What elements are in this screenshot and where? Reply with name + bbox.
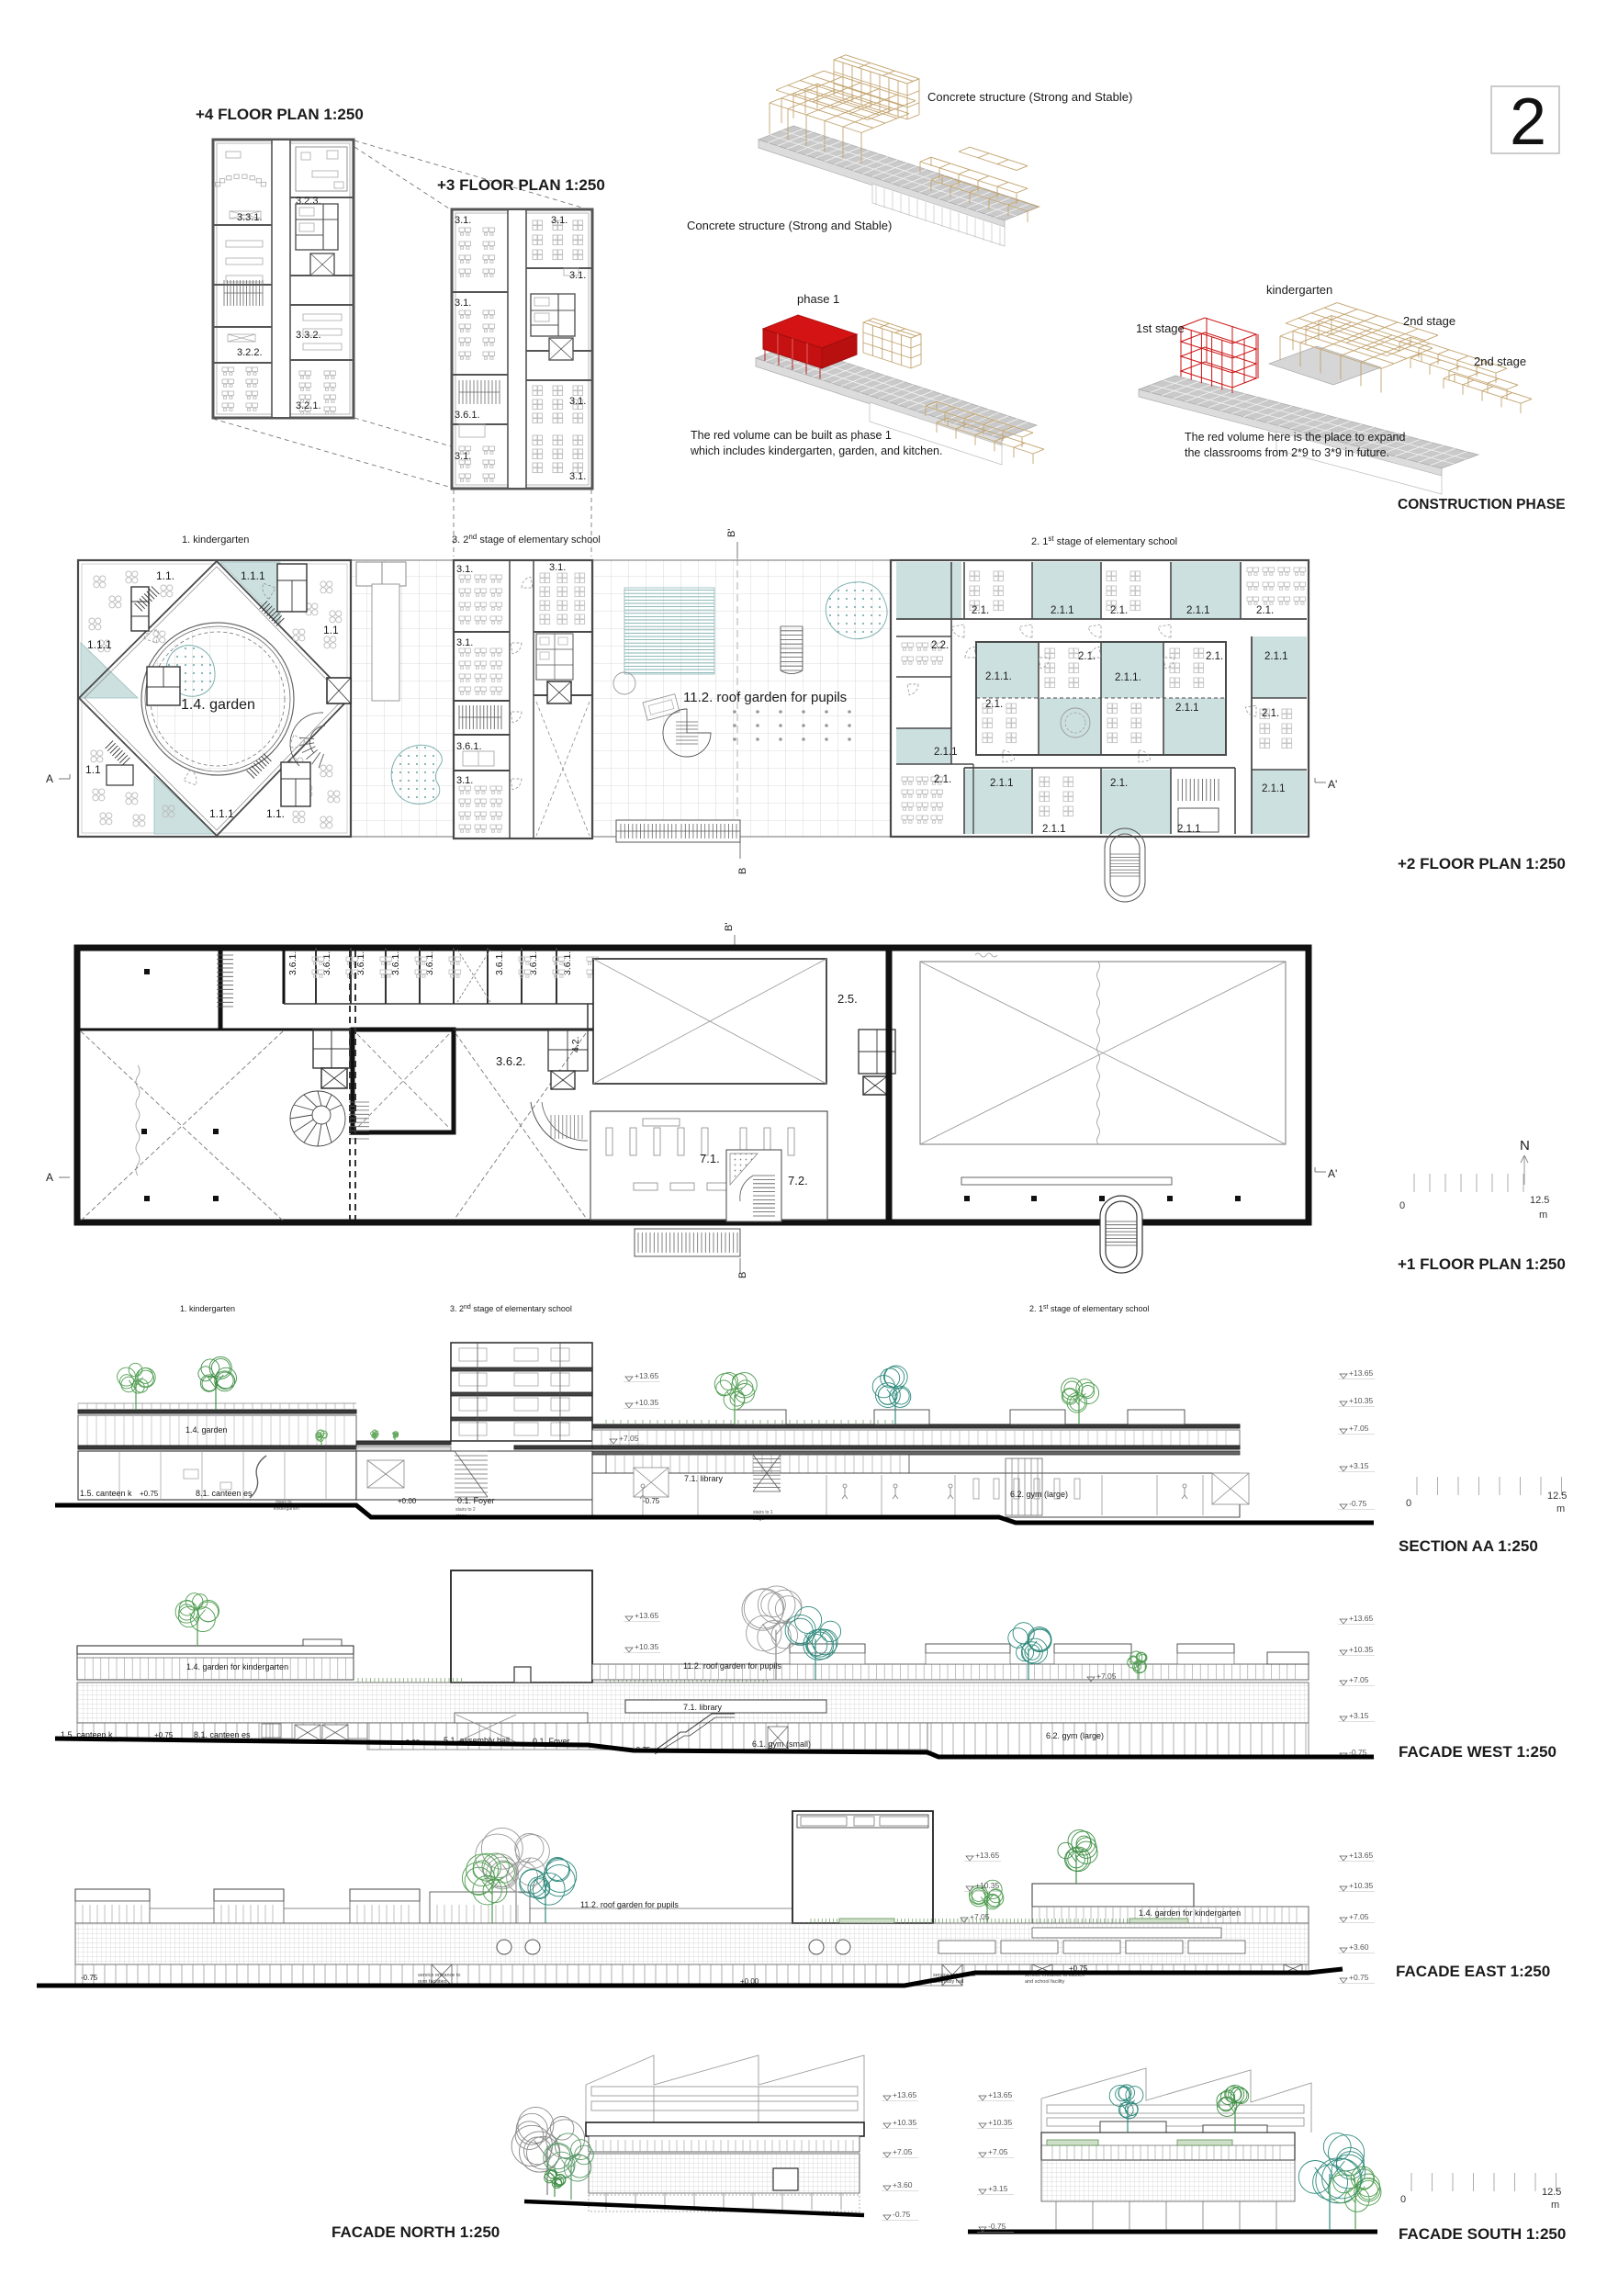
svg-text:3.1.: 3.1. [456, 564, 473, 575]
svg-text:0: 0 [1400, 2194, 1406, 2205]
svg-text:-0.75: -0.75 [988, 2222, 1006, 2231]
svg-text:Concrete structure (Strong and: Concrete structure (Strong and Stable) [927, 90, 1132, 104]
svg-text:SECTION AA 1:250: SECTION AA 1:250 [1399, 1537, 1538, 1555]
svg-text:CONSTRUCTION PHASE: CONSTRUCTION PHASE [1398, 497, 1566, 512]
svg-text:12.5: 12.5 [1547, 1491, 1567, 1502]
svg-text:2.5.: 2.5. [837, 992, 858, 1006]
svg-text:m: m [1556, 1503, 1565, 1514]
svg-text:+7.05: +7.05 [619, 1434, 639, 1443]
svg-text:3.1.: 3.1. [551, 215, 568, 226]
svg-text:7.1. library: 7.1. library [683, 1703, 723, 1712]
svg-text:3.6.1.: 3.6.1. [321, 951, 332, 975]
svg-text:2. 1st stage of elementary sc: 2. 1st stage of elementary school [1029, 1304, 1150, 1314]
svg-text:+10.35: +10.35 [988, 2118, 1013, 2127]
svg-text:+13.65: +13.65 [635, 1611, 659, 1620]
svg-text:8.1. canteen es: 8.1. canteen es [196, 1489, 253, 1498]
svg-text:2.1.1: 2.1.1 [1186, 605, 1210, 616]
svg-text:3.6.2.: 3.6.2. [496, 1054, 526, 1068]
svg-text:3.6.1.: 3.6.1. [562, 951, 573, 975]
svg-text:3.1.: 3.1. [455, 215, 471, 226]
svg-text:service entrance to: service entrance to [418, 1973, 460, 1978]
svg-text:1.5. canteen k: 1.5. canteen k [80, 1489, 132, 1498]
svg-text:3.6.1.: 3.6.1. [287, 951, 298, 975]
svg-text:+0.00: +0.00 [398, 1497, 417, 1505]
svg-text:0.1. Foyer: 0.1. Foyer [457, 1496, 495, 1505]
svg-text:3.6.1.: 3.6.1. [355, 951, 366, 975]
svg-text:3.2.2.: 3.2.2. [237, 347, 263, 358]
svg-text:stairs to 2: stairs to 2 [455, 1507, 476, 1513]
svg-text:2.1.: 2.1. [985, 699, 1003, 710]
svg-text:1.1: 1.1 [85, 763, 101, 776]
svg-text:+3.60: +3.60 [1349, 1942, 1369, 1952]
svg-text:3.3.1.: 3.3.1. [237, 212, 263, 223]
svg-text:kindergarten: kindergarten [1266, 283, 1332, 297]
svg-text:which includes kindergarten,: which includes kindergarten, garden, and… [690, 445, 942, 457]
svg-text:+10.35: +10.35 [975, 1881, 1000, 1890]
svg-text:+3.60: +3.60 [893, 2180, 913, 2189]
svg-text:2.1.1: 2.1.1 [1262, 783, 1286, 794]
svg-text:2.2.: 2.2. [931, 640, 949, 651]
svg-text:2.1.1.: 2.1.1. [985, 671, 1012, 682]
svg-text:+10.35: +10.35 [1349, 1645, 1374, 1654]
svg-text:B': B' [726, 529, 737, 537]
svg-text:1. kindergarten: 1. kindergarten [182, 535, 249, 546]
svg-text:11.2. roof garden for pupils: 11.2. roof garden for pupils [580, 1900, 679, 1909]
svg-text:and school facility: and school facility [1025, 1979, 1065, 1985]
svg-text:-0.75: -0.75 [81, 1974, 98, 1982]
svg-text:3.1.: 3.1. [549, 562, 566, 573]
svg-text:A: A [46, 1171, 53, 1184]
svg-text:+10.35: +10.35 [893, 2118, 917, 2127]
svg-text:12.5: 12.5 [1530, 1195, 1549, 1206]
svg-text:+3.15: +3.15 [1349, 1711, 1369, 1720]
svg-text:2: 2 [1510, 85, 1546, 159]
svg-text:+13.65: +13.65 [975, 1851, 1000, 1860]
svg-text:3.6.1.: 3.6.1. [455, 410, 480, 421]
svg-text:FACADE SOUTH 1:250: FACADE SOUTH 1:250 [1399, 2225, 1566, 2243]
svg-text:+7.05: +7.05 [970, 1912, 990, 1921]
svg-text:2.1.1: 2.1.1 [1175, 703, 1199, 714]
svg-text:FACADE WEST 1:250: FACADE WEST 1:250 [1399, 1743, 1556, 1761]
svg-text:1st stage: 1st stage [1136, 321, 1185, 335]
svg-text:+7.05: +7.05 [1096, 1671, 1117, 1681]
svg-text:+4 FLOOR PLAN 1:250: +4 FLOOR PLAN 1:250 [196, 106, 364, 123]
svg-text:3.2.1.: 3.2.1. [296, 400, 321, 411]
svg-text:7.2.: 7.2. [788, 1174, 808, 1187]
svg-text:3.3.2.: 3.3.2. [296, 330, 321, 341]
svg-text:2.1.1: 2.1.1 [1177, 824, 1201, 835]
svg-text:6.2. gym (large): 6.2. gym (large) [1010, 1490, 1068, 1499]
svg-text:A: A [46, 772, 53, 785]
svg-text:+13.65: +13.65 [988, 2090, 1013, 2099]
svg-text:1.1.1: 1.1.1 [209, 807, 234, 820]
svg-text:3.1.: 3.1. [569, 471, 586, 482]
svg-text:+3 FLOOR PLAN 1:250: +3 FLOOR PLAN 1:250 [437, 176, 605, 194]
svg-text:2.1.: 2.1. [972, 605, 989, 616]
svg-text:+13.65: +13.65 [635, 1371, 659, 1380]
svg-text:3.6.1.: 3.6.1. [528, 951, 539, 975]
svg-text:+10.35: +10.35 [1349, 1396, 1374, 1405]
svg-text:Concrete structure (Strong and: Concrete structure (Strong and Stable) [687, 219, 892, 232]
svg-text:+13.65: +13.65 [1349, 1614, 1374, 1623]
svg-text:+7.05: +7.05 [1349, 1675, 1369, 1684]
svg-text:1. kindergarten: 1. kindergarten [180, 1304, 235, 1313]
svg-text:3.6.1.: 3.6.1. [456, 741, 482, 752]
svg-text:2. 1st stage of elementary sc: 2. 1st stage of elementary school [1031, 535, 1177, 548]
svg-text:2.1.: 2.1. [1110, 605, 1128, 616]
svg-text:2.1.1.: 2.1.1. [1115, 672, 1141, 683]
svg-text:1.4. garden for kindergarten: 1.4. garden for kindergarten [1139, 1908, 1241, 1918]
svg-text:2.1.1: 2.1.1 [1051, 605, 1074, 616]
svg-text:3.1.: 3.1. [456, 775, 473, 786]
svg-text:3.1.: 3.1. [455, 451, 471, 462]
svg-text:B': B' [724, 923, 735, 931]
svg-text:1.4. garden: 1.4. garden [185, 1425, 228, 1435]
svg-text:2.1.: 2.1. [1078, 651, 1096, 662]
svg-text:+1 FLOOR PLAN 1:250: +1 FLOOR PLAN 1:250 [1398, 1255, 1566, 1273]
svg-text:6.2. gym (large): 6.2. gym (large) [1046, 1731, 1104, 1740]
svg-text:1.1.: 1.1. [266, 807, 285, 820]
svg-text:3.6.1.: 3.6.1. [494, 951, 505, 975]
svg-text:1.4. garden: 1.4. garden [181, 697, 255, 713]
svg-text:+2 FLOOR PLAN 1:250: +2 FLOOR PLAN 1:250 [1398, 855, 1566, 872]
svg-text:3.1.: 3.1. [569, 396, 586, 407]
svg-text:2.1.1: 2.1.1 [990, 778, 1014, 789]
svg-text:1.1.1: 1.1.1 [241, 569, 265, 582]
svg-text:3.2.3.: 3.2.3. [296, 196, 321, 207]
svg-text:The red volume can be built as: The red volume can be built as phase 1 [691, 429, 892, 442]
svg-text:+10.35: +10.35 [635, 1642, 659, 1651]
svg-text:+10.35: +10.35 [635, 1398, 659, 1407]
svg-text:3.1.: 3.1. [455, 298, 471, 309]
svg-text:N: N [1520, 1138, 1530, 1154]
svg-text:+7.05: +7.05 [1349, 1424, 1369, 1433]
svg-text:1.1: 1.1 [323, 624, 339, 636]
svg-text:0: 0 [1406, 1498, 1411, 1509]
svg-text:3.6.1.: 3.6.1. [424, 951, 435, 975]
svg-text:2nd stage: 2nd stage [1474, 355, 1526, 368]
svg-text:2.1.1: 2.1.1 [1042, 824, 1066, 835]
svg-text:1.1.: 1.1. [156, 569, 174, 582]
svg-text:2.1.: 2.1. [1256, 605, 1274, 616]
svg-text:1.1.1: 1.1.1 [87, 638, 112, 651]
svg-text:B: B [737, 1272, 748, 1278]
svg-text:2.1.: 2.1. [1206, 651, 1223, 662]
svg-text:m: m [1551, 2200, 1559, 2211]
svg-text:stairs to 1: stairs to 1 [753, 1510, 773, 1515]
svg-text:3.1.: 3.1. [569, 270, 586, 281]
svg-text:12.5: 12.5 [1542, 2187, 1561, 2198]
svg-text:+0.75: +0.75 [140, 1490, 159, 1498]
svg-text:11.2. roof garden for pupils: 11.2. roof garden for pupils [683, 1661, 781, 1671]
svg-text:+13.65: +13.65 [893, 2090, 917, 2099]
svg-text:+0.75: +0.75 [1349, 1973, 1369, 1982]
svg-text:phase 1: phase 1 [797, 292, 839, 306]
svg-text:+10.35: +10.35 [1349, 1881, 1374, 1890]
svg-text:7.1. library: 7.1. library [684, 1474, 724, 1483]
svg-text:-0.75: -0.75 [893, 2210, 911, 2219]
svg-text:11.2. roof garden for pupils: 11.2. roof garden for pupils [683, 690, 847, 705]
svg-text:6.1. gym (small): 6.1. gym (small) [752, 1739, 811, 1749]
svg-text:2nd stage: 2nd stage [1403, 314, 1455, 328]
svg-text:2.1.: 2.1. [1262, 708, 1279, 719]
svg-text:A': A' [1328, 1167, 1337, 1180]
svg-text:+3.15: +3.15 [988, 2184, 1008, 2193]
svg-text:the classrooms from 2*9 to 3*9: the classrooms from 2*9 to 3*9 in future… [1185, 446, 1389, 459]
svg-text:+3.15: +3.15 [1349, 1461, 1369, 1470]
svg-text:FACADE NORTH 1:250: FACADE NORTH 1:250 [332, 2223, 500, 2241]
svg-text:A': A' [1328, 778, 1337, 791]
svg-text:+13.65: +13.65 [1349, 1851, 1374, 1860]
svg-text:7.1.: 7.1. [700, 1152, 720, 1165]
svg-text:-0.75: -0.75 [1349, 1499, 1367, 1508]
svg-text:+7.05: +7.05 [988, 2147, 1008, 2156]
svg-text:m: m [1539, 1210, 1547, 1221]
svg-text:0: 0 [1399, 1200, 1405, 1211]
svg-text:+7.05: +7.05 [1349, 1912, 1369, 1921]
svg-text:FACADE EAST 1:250: FACADE EAST 1:250 [1396, 1963, 1550, 1980]
svg-text:1.4. garden for kindergarten: 1.4. garden for kindergarten [186, 1662, 288, 1671]
svg-text:2.1.: 2.1. [934, 774, 951, 785]
svg-text:3.1.: 3.1. [456, 637, 473, 648]
svg-text:+13.65: +13.65 [1349, 1368, 1374, 1378]
svg-text:The red volume here is the pla: The red volume here is the place to expa… [1185, 431, 1405, 444]
svg-text:+7.05: +7.05 [893, 2147, 913, 2156]
svg-text:2.1.: 2.1. [1110, 778, 1128, 789]
svg-text:2.1.1: 2.1.1 [934, 747, 958, 758]
svg-text:2.1.1: 2.1.1 [1264, 651, 1288, 662]
svg-text:4.2.: 4.2. [570, 1036, 581, 1052]
svg-text:B: B [737, 868, 748, 874]
